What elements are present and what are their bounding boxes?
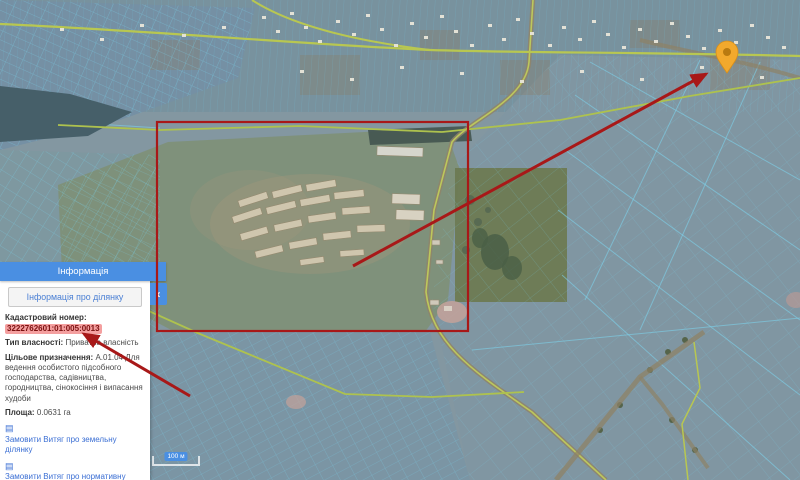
- purpose-field: Цільове призначення: А.01.04 Для ведення…: [5, 353, 145, 404]
- order-parcel-extract-link[interactable]: Замовити Витяг про земельну ділянку: [5, 423, 145, 455]
- collapse-panel-button[interactable]: [150, 283, 167, 305]
- purpose-label: Цільове призначення:: [5, 353, 93, 362]
- map-scale-bar: 100 м: [152, 456, 200, 466]
- cadastral-number-value[interactable]: 3222762601:01:005:0013: [5, 324, 102, 334]
- document-icon: [5, 461, 15, 473]
- area-field: Площа: 0.0631 га: [5, 408, 145, 418]
- area-value: 0.0631 га: [37, 408, 71, 417]
- document-icon: [5, 423, 15, 435]
- ownership-label: Тип власності:: [5, 338, 63, 347]
- plot-info-button[interactable]: Інформація про ділянку: [8, 287, 142, 307]
- panel-links: Замовити Витяг про земельну ділянку Замо…: [5, 423, 145, 480]
- ownership-field: Тип власності: Приватна власність: [5, 338, 145, 348]
- scale-label: 100 м: [164, 452, 187, 461]
- info-tab-label: Інформація: [58, 266, 109, 277]
- order-valuation-extract-link[interactable]: Замовити Витяг про нормативну грошову оц…: [5, 461, 145, 480]
- area-label: Площа:: [5, 408, 35, 417]
- info-panel: Інформація про ділянку Кадастровий номер…: [0, 281, 150, 480]
- cadastral-number-field: Кадастровий номер: 3222762601:01:005:001…: [5, 313, 145, 334]
- cadastral-map-app: Інформація Інформація про ділянку Кадаст…: [0, 0, 800, 480]
- chevron-left-icon: [157, 286, 161, 301]
- ownership-value: Приватна власність: [65, 338, 138, 347]
- info-tab-header[interactable]: Інформація: [0, 262, 166, 281]
- cadastral-number-label: Кадастровий номер:: [5, 313, 87, 322]
